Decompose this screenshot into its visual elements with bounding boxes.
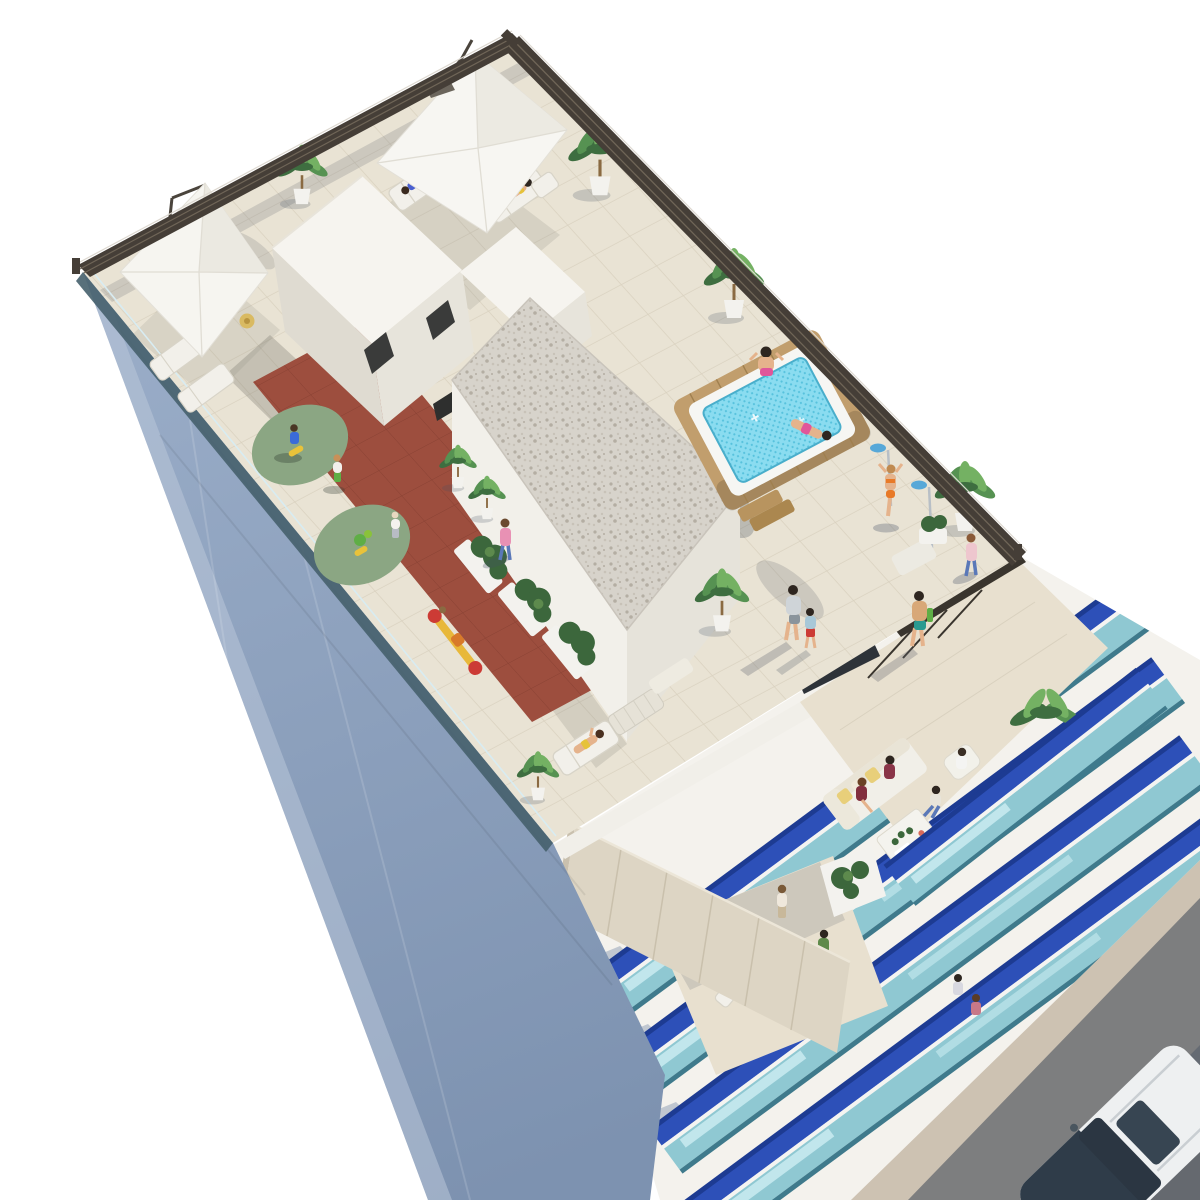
building-rendering (0, 0, 1200, 1200)
shower-head (870, 444, 886, 453)
sofa-person (884, 756, 895, 780)
bush-planter (919, 515, 947, 544)
rendering-canvas (0, 0, 1200, 1200)
shower-head (911, 481, 927, 490)
